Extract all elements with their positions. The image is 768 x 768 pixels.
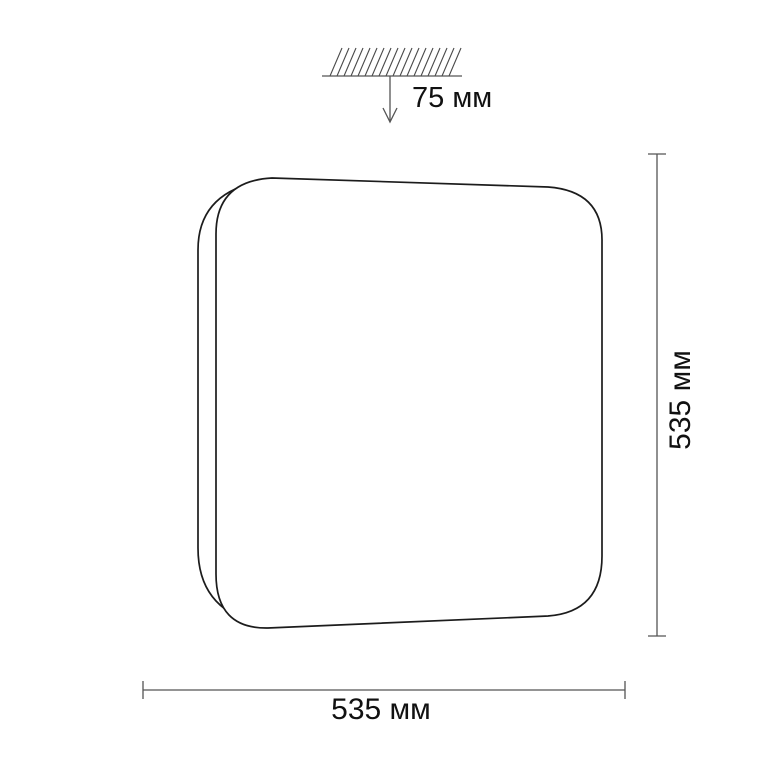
fixture <box>198 178 602 628</box>
ceiling-symbol <box>322 48 462 76</box>
width-dimension-label: 535 мм <box>331 693 431 726</box>
ceiling-hatching-icon <box>330 48 461 76</box>
offset-dimension: 75 мм <box>383 76 492 122</box>
height-dimension: 535 мм <box>648 154 697 636</box>
fixture-front-face <box>216 178 602 628</box>
drawing-svg: 75 мм 535 мм 535 мм <box>0 0 768 768</box>
offset-dimension-label: 75 мм <box>412 82 492 114</box>
width-dimension: 535 мм <box>143 681 625 726</box>
technical-drawing: 75 мм 535 мм 535 мм <box>0 0 768 768</box>
height-dimension-label: 535 мм <box>664 350 697 450</box>
